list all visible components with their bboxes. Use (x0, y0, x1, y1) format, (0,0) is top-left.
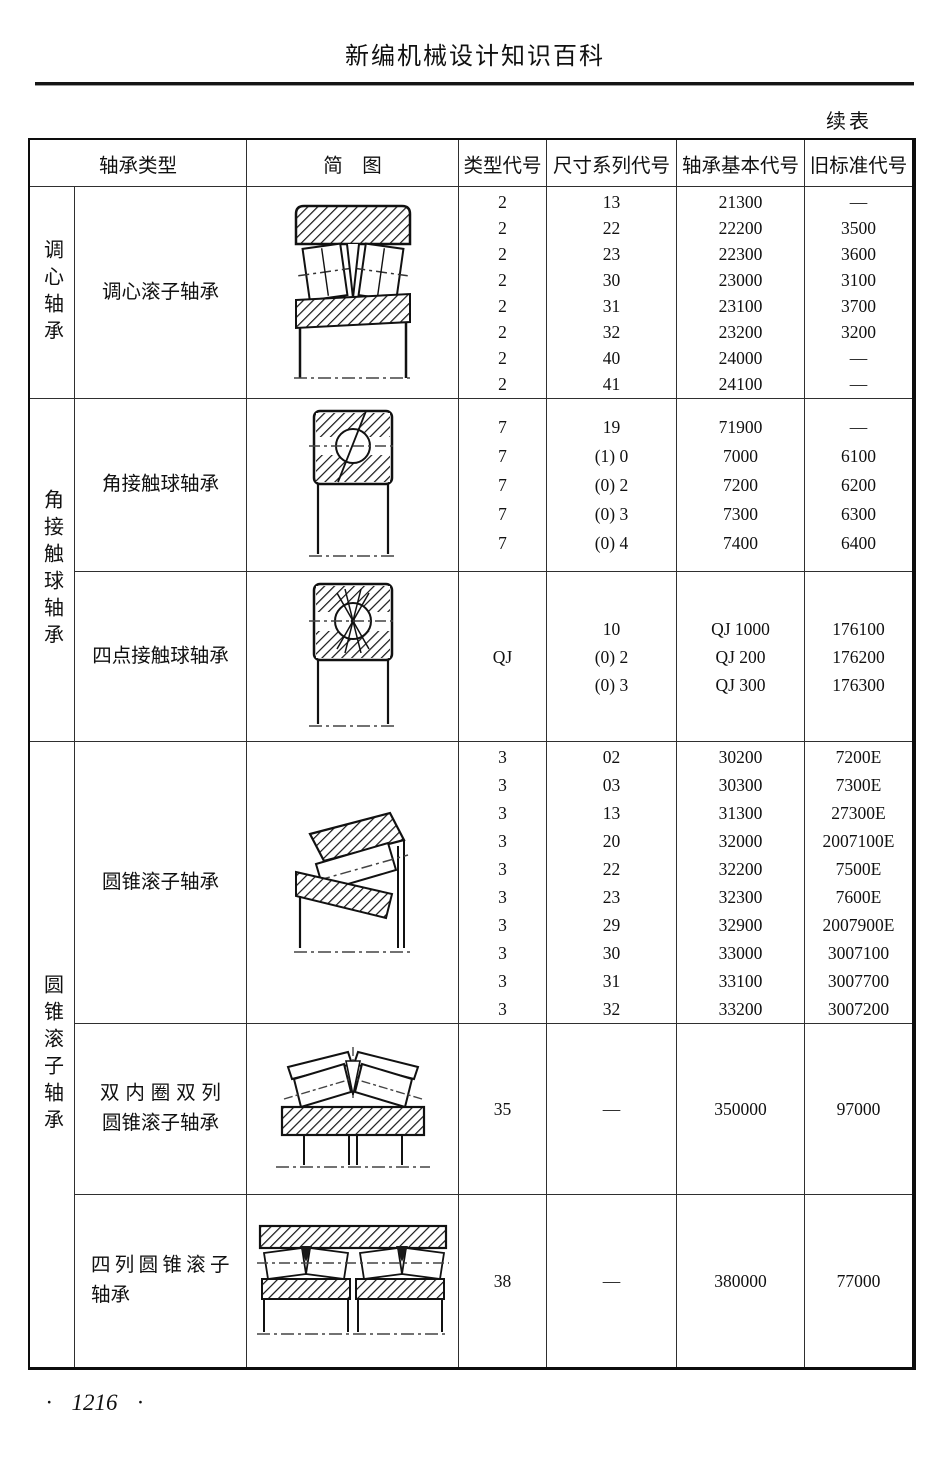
header-bearing-type: 轴承类型 (30, 140, 247, 186)
table-row-spherical-roller: 调心滚子轴承 (75, 187, 912, 398)
old-standard-code-cell: —6100620063006400 (805, 399, 912, 571)
bearing-name-line-1: 四列圆锥滚子 (91, 1251, 234, 1281)
size-series-code-cell: — (547, 1024, 677, 1194)
four-point-contact-ball-bearing-diagram (247, 572, 459, 741)
book-title: 新编机械设计知识百科 (0, 36, 950, 71)
old-standard-code-cell: 97000 (805, 1024, 912, 1194)
bearing-basic-code-cell: 350000 (677, 1024, 805, 1194)
bearing-name-line-2: 轴承 (91, 1281, 130, 1311)
old-standard-code-cell: —35003600310037003200—— (805, 187, 912, 398)
bearing-name: 四点接触球轴承 (92, 642, 229, 672)
size-series-code-cell: — (547, 1195, 677, 1367)
group-angular-contact-ball-bearings: 角接触球轴承 角接触球轴承 (30, 399, 912, 742)
bearing-basic-code-cell: QJ 1000QJ 200QJ 300 (677, 572, 805, 741)
book-page: 新编机械设计知识百科 续表 轴承类型 简 图 类型代号 尺寸系列代号 轴承基本代… (0, 0, 950, 1467)
angular-contact-ball-bearing-diagram (247, 399, 459, 571)
type-code-cell: 35 (459, 1024, 547, 1194)
bearing-name: 圆锥滚子轴承 (102, 868, 219, 898)
group-label-self-aligning: 调心轴承 (30, 187, 75, 398)
table-header-row: 轴承类型 简 图 类型代号 尺寸系列代号 轴承基本代号 旧标准代号 (30, 140, 912, 187)
header-type-code: 类型代号 (459, 140, 547, 186)
group-tapered-roller-bearings: 圆锥滚子轴承 圆锥滚子轴承 (30, 742, 912, 1367)
bearing-name-line-1: 双内圈双列 (94, 1079, 227, 1109)
page-number: · 1216 · (46, 1390, 143, 1416)
spherical-roller-bearing-diagram (247, 187, 459, 398)
header-diagram: 简 图 (247, 140, 459, 186)
old-standard-code-cell: 176100176200176300 (805, 572, 912, 741)
group-self-aligning-bearings: 调心轴承 调心滚子轴承 (30, 187, 912, 399)
type-code-cell: 3333333333 (459, 742, 547, 1023)
bearing-code-table: 轴承类型 简 图 类型代号 尺寸系列代号 轴承基本代号 旧标准代号 调心轴承 调… (28, 138, 916, 1370)
table-row-four-point-contact: 四点接触球轴承 (75, 572, 912, 741)
size-series-code-cell: 10(0) 2(0) 3 (547, 572, 677, 741)
old-standard-code-cell: 7200E7300E27300E2007100E7500E7600E200790… (805, 742, 912, 1023)
bearing-name-cell: 四点接触球轴承 (75, 572, 247, 741)
type-code-cell: 38 (459, 1195, 547, 1367)
table-row-angular-contact: 角接触球轴承 (75, 399, 912, 572)
size-series-code-cell: 02031320222329303132 (547, 742, 677, 1023)
bearing-name-line-2: 圆锥滚子轴承 (102, 1109, 219, 1139)
size-series-code-cell: 1322233031324041 (547, 187, 677, 398)
size-series-code-cell: 19(1) 0(0) 2(0) 3(0) 4 (547, 399, 677, 571)
type-code-cell: 77777 (459, 399, 547, 571)
old-standard-code-cell: 77000 (805, 1195, 912, 1367)
type-code-cell: QJ (459, 572, 547, 741)
header-bearing-basic-code: 轴承基本代号 (677, 140, 805, 186)
header-old-standard-code: 旧标准代号 (805, 140, 912, 186)
type-code-cell: 22222222 (459, 187, 547, 398)
bearing-name-cell: 双内圈双列 圆锥滚子轴承 (75, 1024, 247, 1194)
bearing-basic-code-cell: 380000 (677, 1195, 805, 1367)
bearing-basic-code-cell: 2130022200223002300023100232002400024100 (677, 187, 805, 398)
bearing-name: 角接触球轴承 (102, 470, 219, 500)
table-row-tapered-roller: 圆锥滚子轴承 (75, 742, 912, 1024)
tapered-roller-bearing-diagram (247, 742, 459, 1023)
title-divider-rule (35, 82, 914, 86)
four-row-tapered-roller-bearing-diagram (247, 1195, 459, 1367)
bearing-name-cell: 调心滚子轴承 (75, 187, 247, 398)
bearing-name-cell: 四列圆锥滚子 轴承 (75, 1195, 247, 1367)
bearing-basic-code-cell: 719007000720073007400 (677, 399, 805, 571)
double-inner-ring-double-row-tapered-roller-bearing-diagram (247, 1024, 459, 1194)
table-row-four-row-tapered-roller: 四列圆锥滚子 轴承 (75, 1195, 912, 1367)
bearing-basic-code-cell: 3020030300313003200032200323003290033000… (677, 742, 805, 1023)
group-label-angular-contact: 角接触球轴承 (30, 399, 75, 741)
table-row-double-inner-ring-double-row: 双内圈双列 圆锥滚子轴承 (75, 1024, 912, 1195)
group-label-tapered-roller: 圆锥滚子轴承 (30, 742, 75, 1367)
bearing-name-cell: 圆锥滚子轴承 (75, 742, 247, 1023)
bearing-name-cell: 角接触球轴承 (75, 399, 247, 571)
bearing-name: 调心滚子轴承 (102, 278, 219, 308)
header-size-series-code: 尺寸系列代号 (547, 140, 677, 186)
continued-table-note: 续表 (826, 105, 872, 134)
